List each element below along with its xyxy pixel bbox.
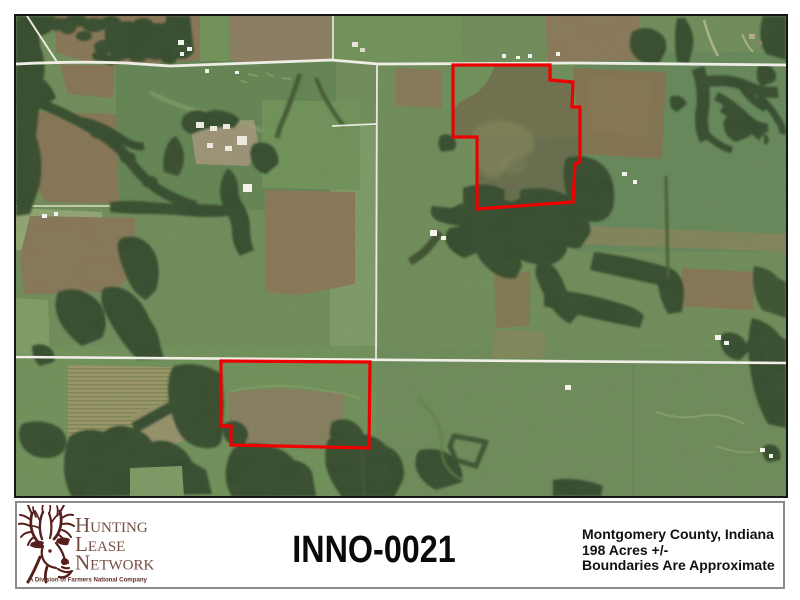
svg-text:A Division of Farmers National: A Division of Farmers National Company xyxy=(29,577,148,584)
